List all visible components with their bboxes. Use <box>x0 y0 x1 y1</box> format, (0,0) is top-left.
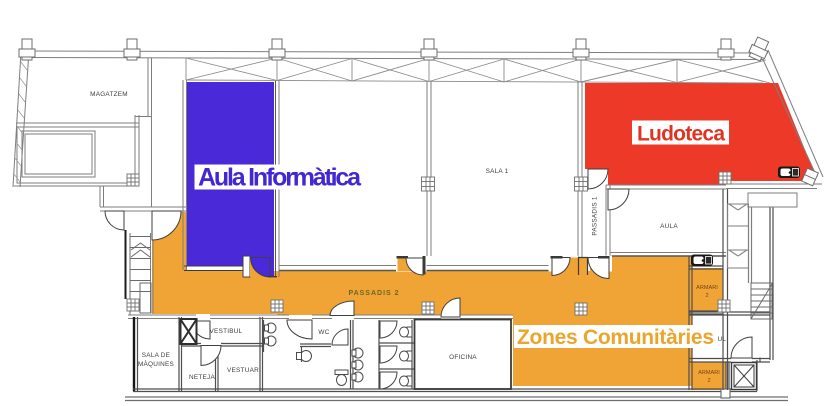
svg-text:Ludoteca: Ludoteca <box>637 123 725 146</box>
svg-text:WC: WC <box>318 329 329 336</box>
svg-text:VESTUARI: VESTUARI <box>227 367 261 374</box>
svg-text:2: 2 <box>705 293 708 299</box>
svg-text:AULA: AULA <box>660 223 678 230</box>
svg-text:ARMARI: ARMARI <box>696 285 718 291</box>
svg-text:SALA DE: SALA DE <box>142 352 170 359</box>
svg-text:VESTIBUL: VESTIBUL <box>210 328 243 335</box>
svg-text:SALA 1: SALA 1 <box>486 168 509 175</box>
svg-text:2: 2 <box>707 378 710 384</box>
svg-text:Aula Informàtica: Aula Informàtica <box>198 164 362 192</box>
svg-text:PASSADIS 1: PASSADIS 1 <box>592 196 599 236</box>
svg-text:MAGATZEM: MAGATZEM <box>90 91 128 98</box>
svg-text:NETEJA: NETEJA <box>189 374 215 381</box>
svg-text:UL: UL <box>718 336 727 343</box>
svg-text:MÀQUINES: MÀQUINES <box>138 359 174 368</box>
svg-text:ARMARI: ARMARI <box>698 370 720 376</box>
svg-text:Zones Comunitàries: Zones Comunitàries <box>517 326 714 349</box>
svg-text:OFICINA: OFICINA <box>449 354 477 361</box>
svg-text:PASSADIS 2: PASSADIS 2 <box>348 290 399 297</box>
